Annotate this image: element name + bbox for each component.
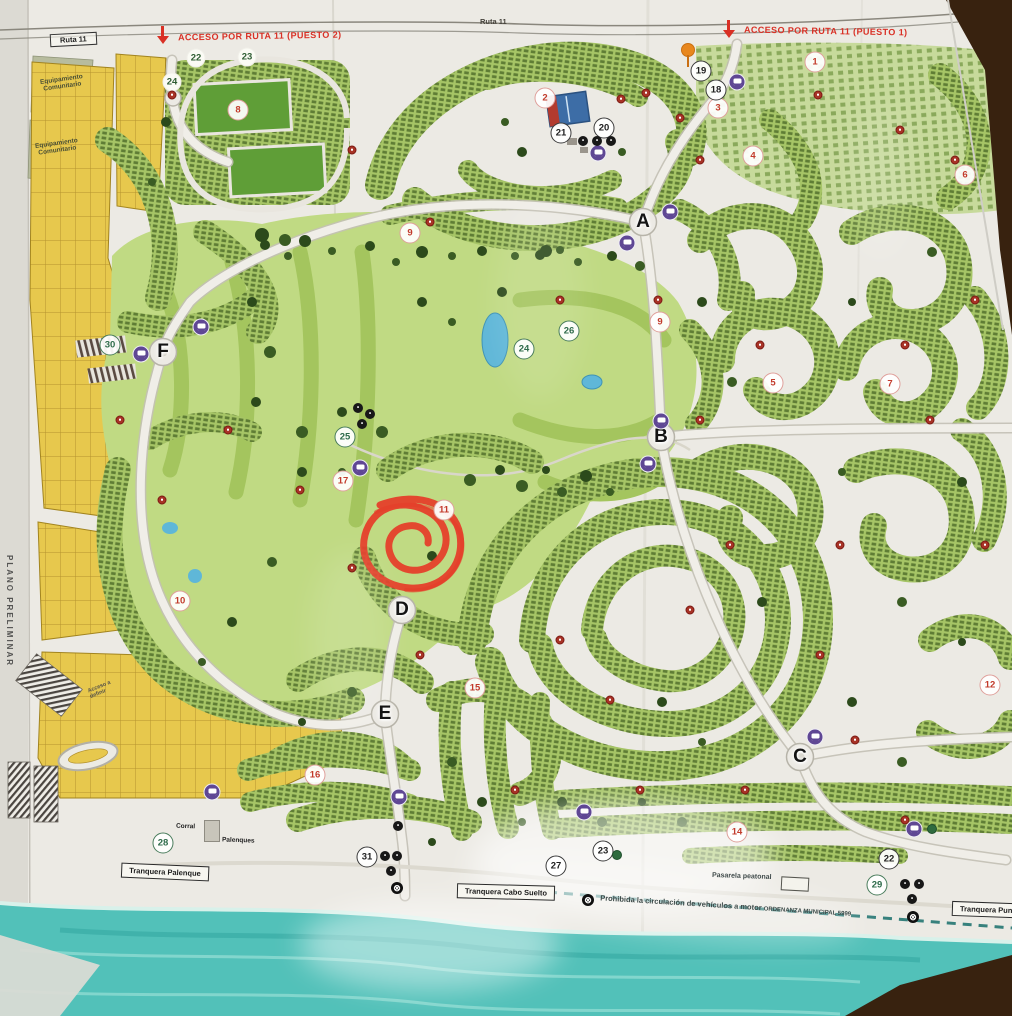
hydrant-dot-icon <box>654 296 663 305</box>
hydrant-dot-icon <box>951 156 960 165</box>
service-dot-icon: • <box>357 419 367 429</box>
hydrant-dot-icon <box>296 486 305 495</box>
sector-badge-8: 8 <box>228 100 249 121</box>
sector-badge-6: 6 <box>955 165 976 186</box>
service-dot-icon: • <box>606 136 616 146</box>
hydrant-dot-icon <box>981 541 990 550</box>
sector-badge-16: 16 <box>305 765 326 786</box>
service-dot-icon: • <box>578 136 588 146</box>
junction-letter-F: F <box>157 341 169 363</box>
sector-badge-2: 2 <box>535 88 556 109</box>
sector-badge-10: 10 <box>170 591 191 612</box>
sector-badge-26: 26 <box>559 321 580 342</box>
sector-badge-14: 14 <box>727 822 748 843</box>
green-marker-icon <box>612 850 622 860</box>
hydrant-dot-icon <box>168 91 177 100</box>
hydrant-dot-icon <box>726 541 735 550</box>
hydrant-dot-icon <box>676 114 685 123</box>
service-dot-icon: • <box>907 894 917 904</box>
hydrant-dot-icon <box>901 341 910 350</box>
service-dot-icon: • <box>592 136 602 146</box>
service-dot-icon: • <box>900 879 910 889</box>
hydrant-dot-icon <box>851 736 860 745</box>
hydrant-dot-icon <box>158 496 167 505</box>
sector-badge-3: 3 <box>708 98 729 119</box>
hydrant-dot-icon <box>696 416 705 425</box>
no-entry-icon: ⊗ <box>582 894 594 906</box>
bus-stop-icon <box>193 319 210 336</box>
bus-stop-icon <box>576 804 593 821</box>
sector-badge-5: 5 <box>763 373 784 394</box>
bus-stop-icon <box>662 204 679 221</box>
hydrant-dot-icon <box>926 416 935 425</box>
hydrant-dot-icon <box>416 651 425 660</box>
sector-badge-18: 18 <box>706 80 727 101</box>
sector-badge-4: 4 <box>743 146 764 167</box>
bus-stop-icon <box>590 145 607 162</box>
hydrant-dot-icon <box>348 564 357 573</box>
junction-letter-C: C <box>793 746 807 768</box>
hydrant-dot-icon <box>636 786 645 795</box>
no-entry-icon: ⊗ <box>391 882 403 894</box>
bus-stop-icon <box>653 413 670 430</box>
no-entry-icon: ⊗ <box>907 911 919 923</box>
bus-stop-icon <box>204 784 221 801</box>
bus-stop-icon <box>619 235 636 252</box>
hydrant-dot-icon <box>971 296 980 305</box>
hydrant-dot-icon <box>814 91 823 100</box>
green-marker-icon <box>927 824 937 834</box>
service-dot-icon: • <box>386 866 396 876</box>
service-dot-icon: • <box>380 851 390 861</box>
sector-badge-17: 17 <box>333 471 354 492</box>
hydrant-dot-icon <box>896 126 905 135</box>
hydrant-dot-icon <box>696 156 705 165</box>
bus-stop-icon <box>640 456 657 473</box>
hydrant-dot-icon <box>348 146 357 155</box>
sector-badge-22: 22 <box>879 849 900 870</box>
hydrant-dot-icon <box>426 218 435 227</box>
hydrant-dot-icon <box>116 416 125 425</box>
hydrant-dot-icon <box>617 95 626 104</box>
sector-badge-11: 11 <box>434 500 455 521</box>
service-dot-icon: • <box>914 879 924 889</box>
symbol-overlay: 1234567899101112141516171819202122232731… <box>0 0 1012 1016</box>
hydrant-dot-icon <box>642 89 651 98</box>
hydrant-dot-icon <box>224 426 233 435</box>
sector-badge-7: 7 <box>880 374 901 395</box>
sector-badge-12: 12 <box>980 675 1001 696</box>
junction-letter-E: E <box>379 703 392 725</box>
hydrant-dot-icon <box>686 606 695 615</box>
hydrant-dot-icon <box>556 296 565 305</box>
bus-stop-icon <box>729 74 746 91</box>
hydrant-dot-icon <box>556 636 565 645</box>
hydrant-dot-icon <box>816 651 825 660</box>
sector-badge-27: 27 <box>546 856 567 877</box>
sector-badge-24: 24 <box>163 73 182 92</box>
sector-badge-23: 23 <box>238 48 257 67</box>
service-dot-icon: • <box>392 851 402 861</box>
hydrant-dot-icon <box>606 696 615 705</box>
sector-badge-24: 24 <box>514 339 535 360</box>
junction-letter-D: D <box>395 599 409 621</box>
sector-badge-22: 22 <box>187 49 206 68</box>
service-dot-icon: • <box>393 821 403 831</box>
junction-letter-A: A <box>636 211 650 233</box>
entrance-pin-icon <box>681 43 695 57</box>
sector-badge-25: 25 <box>335 427 356 448</box>
hydrant-dot-icon <box>741 786 750 795</box>
sector-badge-30: 30 <box>100 335 121 356</box>
service-dot-icon: • <box>353 403 363 413</box>
sector-badge-28: 28 <box>153 833 174 854</box>
bus-stop-icon <box>133 346 150 363</box>
hydrant-dot-icon <box>756 341 765 350</box>
sector-badge-9: 9 <box>650 312 671 333</box>
sector-badge-1: 1 <box>805 52 826 73</box>
sector-badge-9: 9 <box>400 223 421 244</box>
sector-badge-31: 31 <box>357 847 378 868</box>
hydrant-dot-icon <box>836 541 845 550</box>
sector-badge-15: 15 <box>465 678 486 699</box>
sector-badge-21: 21 <box>551 123 572 144</box>
map-photo: Ruta 11 Ruta 11 ACCESO POR RUTA 11 (PUES… <box>0 0 1012 1016</box>
sector-badge-29: 29 <box>867 875 888 896</box>
bus-stop-icon <box>807 729 824 746</box>
sector-badge-23: 23 <box>593 841 614 862</box>
service-dot-icon: • <box>365 409 375 419</box>
bus-stop-icon <box>391 789 408 806</box>
sector-badge-19: 19 <box>691 61 712 82</box>
hydrant-dot-icon <box>511 786 520 795</box>
hydrant-dot-icon <box>901 816 910 825</box>
bus-stop-icon <box>352 460 369 477</box>
